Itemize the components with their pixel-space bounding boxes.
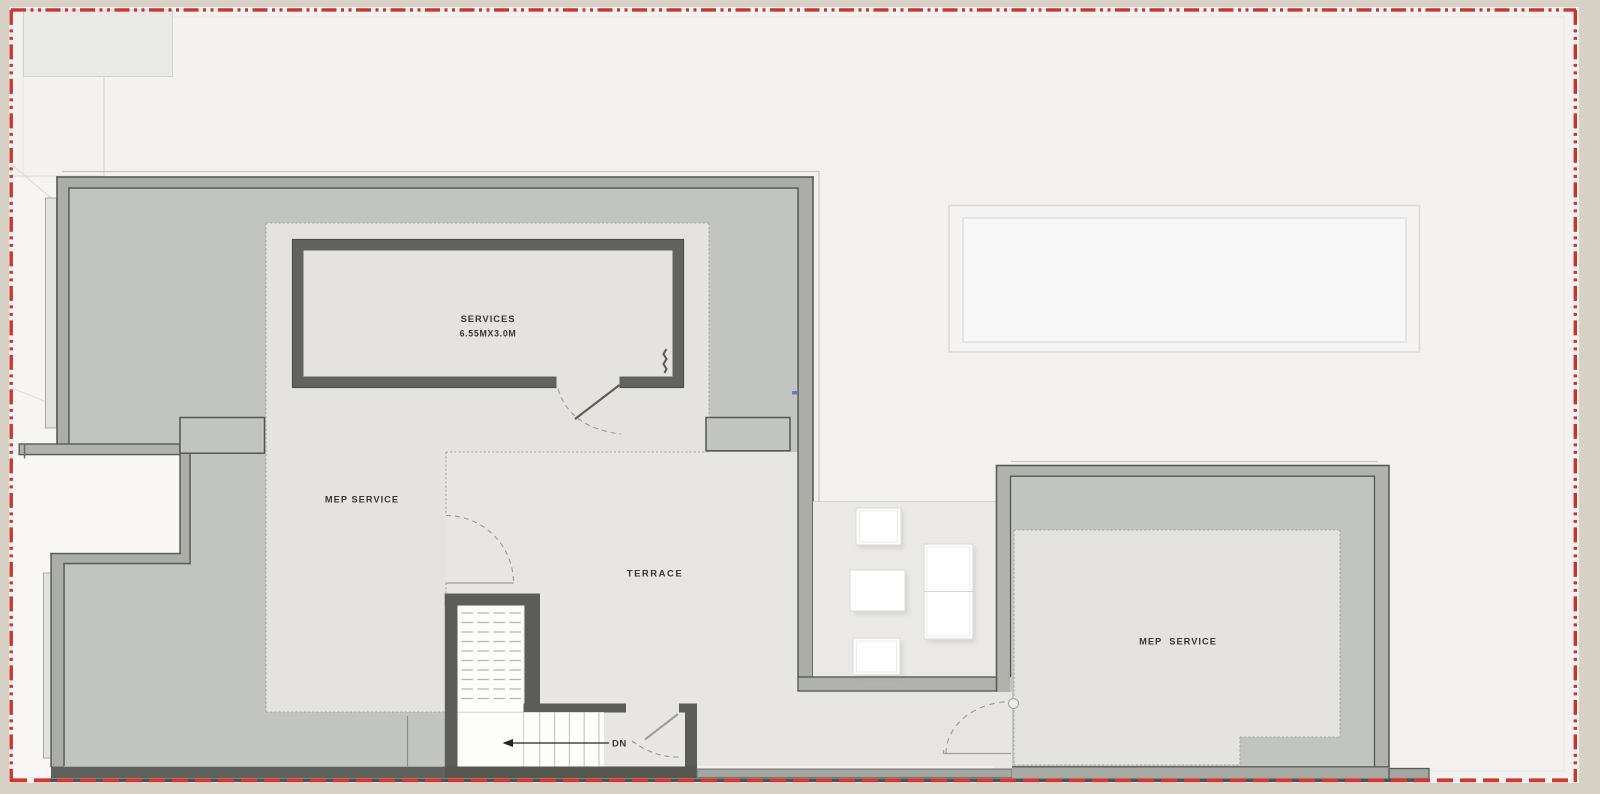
svg-text:SERVICES: SERVICES bbox=[461, 314, 516, 324]
svg-text:TERRACE: TERRACE bbox=[627, 569, 683, 580]
svg-text:MEP SERVICE: MEP SERVICE bbox=[325, 495, 399, 505]
svg-text:6.55MX3.0M: 6.55MX3.0M bbox=[460, 329, 517, 339]
svg-text:MEPSERVICE: MEPSERVICE bbox=[1139, 637, 1217, 647]
svg-text:DN: DN bbox=[612, 739, 627, 750]
